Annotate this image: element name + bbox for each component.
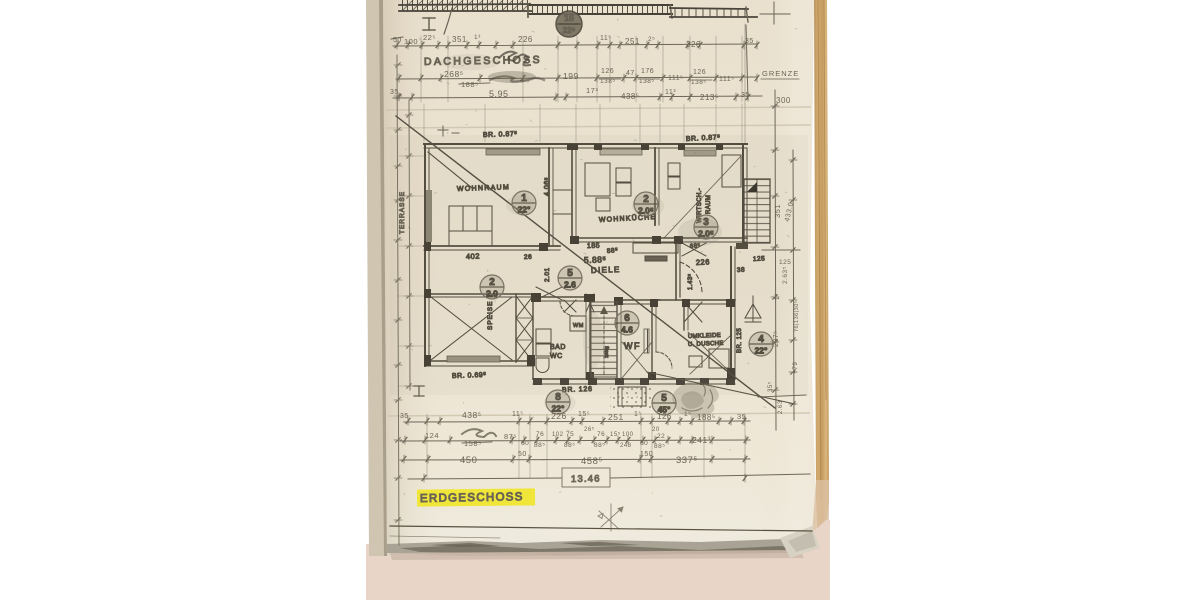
svg-text:35: 35 xyxy=(737,412,746,421)
svg-text:251: 251 xyxy=(608,412,624,422)
svg-text:337⁵: 337⁵ xyxy=(676,455,698,466)
svg-text:75: 75 xyxy=(566,431,574,438)
svg-text:102: 102 xyxy=(552,432,564,438)
svg-text:11⁵: 11⁵ xyxy=(512,411,524,418)
svg-text:126: 126 xyxy=(657,412,672,421)
svg-text:4.6: 4.6 xyxy=(621,325,633,335)
svg-text:22⁵: 22⁵ xyxy=(563,26,576,35)
svg-text:87⁵: 87⁵ xyxy=(504,432,517,441)
svg-text:1³: 1³ xyxy=(775,294,781,300)
svg-text:WF: WF xyxy=(624,341,641,351)
svg-text:188⁵: 188⁵ xyxy=(697,413,716,422)
svg-text:402: 402 xyxy=(466,252,480,261)
svg-text:TERRASSE: TERRASSE xyxy=(399,191,406,234)
svg-text:BR. 125: BR. 125 xyxy=(737,328,743,353)
svg-text:1⁵: 1⁵ xyxy=(684,411,691,418)
svg-text:38: 38 xyxy=(737,267,746,274)
svg-text:226: 226 xyxy=(518,35,533,44)
svg-text:88⁵: 88⁵ xyxy=(564,442,575,449)
svg-text:158⁵: 158⁵ xyxy=(464,439,482,448)
svg-text:2.63⁵: 2.63⁵ xyxy=(782,266,789,284)
svg-text:22⁵: 22⁵ xyxy=(423,33,436,42)
svg-text:BR. 0.69⁵: BR. 0.69⁵ xyxy=(452,372,487,380)
svg-text:2: 2 xyxy=(489,277,495,288)
svg-text:22°: 22° xyxy=(755,346,768,356)
svg-text:251: 251 xyxy=(625,37,640,46)
svg-text:17³: 17³ xyxy=(586,86,598,95)
svg-text:213⁵: 213⁵ xyxy=(700,93,719,102)
svg-text:2⁵: 2⁵ xyxy=(648,36,655,43)
svg-text:2.6: 2.6 xyxy=(564,280,576,290)
svg-text:76: 76 xyxy=(597,431,605,438)
svg-text:5: 5 xyxy=(661,393,667,404)
svg-text:88⁵: 88⁵ xyxy=(607,247,619,255)
svg-text:438⁵: 438⁵ xyxy=(621,92,640,101)
svg-text:458⁵: 458⁵ xyxy=(581,456,603,467)
svg-text:351: 351 xyxy=(452,35,467,44)
svg-text:+79: +79 xyxy=(792,361,799,374)
svg-text:150: 150 xyxy=(640,451,653,458)
svg-text:15⁵: 15⁵ xyxy=(578,411,590,418)
svg-text:438⁵: 438⁵ xyxy=(462,410,482,420)
svg-text:111⁵: 111⁵ xyxy=(719,76,735,83)
svg-text:351: 351 xyxy=(773,204,782,218)
svg-text:35: 35 xyxy=(741,92,750,99)
svg-text:SPEISE: SPEISE xyxy=(487,301,494,330)
svg-text:BAD: BAD xyxy=(550,344,566,351)
svg-text:126: 126 xyxy=(693,69,706,76)
svg-text:100: 100 xyxy=(622,432,634,438)
svg-text:WC: WC xyxy=(550,353,563,360)
svg-text:22: 22 xyxy=(657,433,665,440)
svg-text:76|136|30⁵: 76|136|30⁵ xyxy=(793,300,800,332)
svg-text:50: 50 xyxy=(518,451,527,458)
svg-text:26⁵: 26⁵ xyxy=(584,426,595,433)
svg-text:125: 125 xyxy=(779,259,791,266)
svg-text:RAUM: RAUM xyxy=(706,195,712,214)
svg-text:60: 60 xyxy=(640,440,648,447)
svg-text:125: 125 xyxy=(753,255,766,263)
svg-text:248: 248 xyxy=(620,443,632,449)
svg-text:1.43⁵: 1.43⁵ xyxy=(687,273,694,290)
svg-text:U. DUSCHE: U. DUSCHE xyxy=(688,341,724,348)
svg-text:5: 5 xyxy=(567,268,573,279)
svg-text:226: 226 xyxy=(696,257,710,267)
svg-text:2.63: 2.63 xyxy=(778,400,784,414)
svg-text:60: 60 xyxy=(521,440,529,447)
svg-text:2.0: 2.0 xyxy=(486,289,498,299)
svg-text:126: 126 xyxy=(601,68,614,75)
svg-text:185: 185 xyxy=(587,243,600,250)
svg-text:UMKLEIDE: UMKLEIDE xyxy=(688,333,721,340)
svg-text:100: 100 xyxy=(404,37,418,46)
svg-text:88⁵: 88⁵ xyxy=(654,443,665,450)
svg-text:450: 450 xyxy=(460,455,477,466)
svg-text:88⁵: 88⁵ xyxy=(594,442,605,449)
svg-text:GRENZE: GRENZE xyxy=(762,69,799,78)
svg-text:124: 124 xyxy=(425,431,439,440)
svg-text:11⁵: 11⁵ xyxy=(600,35,612,42)
svg-text:287⁵: 287⁵ xyxy=(773,330,780,347)
svg-text:11³: 11³ xyxy=(665,89,676,96)
svg-text:16: 16 xyxy=(564,13,574,23)
svg-text:111⁵: 111⁵ xyxy=(668,75,684,82)
svg-text:5.88⁵: 5.88⁵ xyxy=(584,254,607,265)
svg-text:ERDGESCHOSS: ERDGESCHOSS xyxy=(420,491,524,505)
svg-text:19Stg: 19Stg xyxy=(604,346,609,358)
svg-text:1³: 1³ xyxy=(474,34,481,41)
svg-text:88⁵: 88⁵ xyxy=(534,442,545,449)
svg-text:35⁵: 35⁵ xyxy=(767,381,774,392)
svg-text:326: 326 xyxy=(686,40,701,49)
svg-text:15⁵: 15⁵ xyxy=(610,431,621,438)
svg-text:4: 4 xyxy=(758,334,764,345)
svg-text:26: 26 xyxy=(524,254,532,261)
svg-text:1⁵: 1⁵ xyxy=(634,411,642,418)
svg-text:WM: WM xyxy=(573,323,584,329)
svg-text:5.95: 5.95 xyxy=(489,89,509,99)
svg-text:188⁵: 188⁵ xyxy=(461,80,479,89)
svg-text:76: 76 xyxy=(536,431,544,438)
svg-text:268⁵: 268⁵ xyxy=(444,69,464,79)
svg-text:199: 199 xyxy=(563,71,579,81)
svg-text:300: 300 xyxy=(776,96,791,105)
svg-text:47: 47 xyxy=(626,70,635,77)
svg-text:BR. 0.87⁵: BR. 0.87⁵ xyxy=(483,131,518,139)
svg-text:4.06⁵: 4.06⁵ xyxy=(544,177,551,196)
svg-text:2.01: 2.01 xyxy=(544,267,551,282)
svg-text:35: 35 xyxy=(400,413,409,420)
svg-text:176: 176 xyxy=(641,68,654,75)
svg-text:13.46: 13.46 xyxy=(571,473,601,485)
svg-text:241³: 241³ xyxy=(692,435,711,445)
svg-text:6: 6 xyxy=(624,313,630,324)
svg-text:DIELE: DIELE xyxy=(591,265,621,275)
